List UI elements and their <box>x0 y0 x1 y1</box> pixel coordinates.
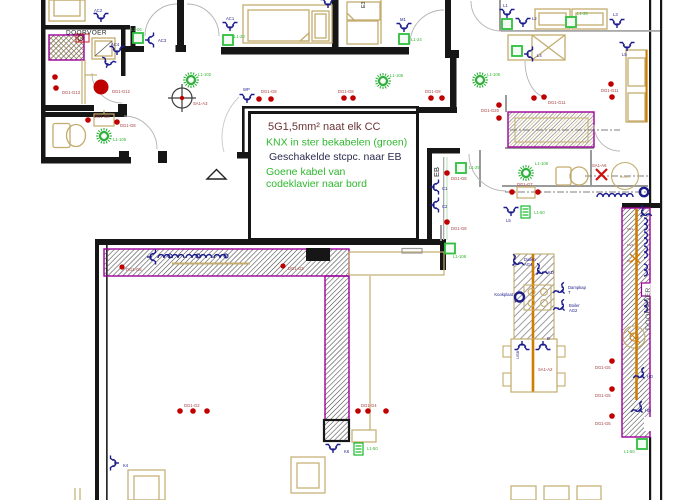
svg-text:L1-50: L1-50 <box>624 449 635 454</box>
svg-text:T: T <box>568 290 571 295</box>
svg-text:SA1-A2: SA1-A2 <box>538 367 553 372</box>
svg-text:Boiler: Boiler <box>620 174 631 179</box>
svg-text:L5: L5 <box>506 218 511 223</box>
svg-text:L1-35: L1-35 <box>577 11 588 16</box>
svg-text:B: B <box>547 336 550 341</box>
svg-text:C2: C2 <box>442 204 448 209</box>
svg-text:EB: EB <box>432 167 441 177</box>
svg-text:DG1-G8: DG1-G8 <box>338 89 354 94</box>
svg-text:Dampkap: Dampkap <box>568 285 587 290</box>
svg-text:5G1,5mm² naat elk CC: 5G1,5mm² naat elk CC <box>268 121 381 133</box>
svg-text:K6: K6 <box>344 449 350 454</box>
svg-text:MV2: MV2 <box>627 243 634 247</box>
svg-text:L1-106: L1-106 <box>535 161 549 166</box>
svg-text:L5: L5 <box>622 52 627 57</box>
svg-text:DG1-G4: DG1-G4 <box>361 403 377 408</box>
svg-text:L1-50: L1-50 <box>367 446 378 451</box>
svg-text:L1-105: L1-105 <box>390 73 404 78</box>
svg-text:Y: Y <box>514 299 517 304</box>
svg-text:L3: L3 <box>613 12 618 17</box>
svg-text:L1-106: L1-106 <box>487 72 501 77</box>
svg-text:DG1-G11: DG1-G11 <box>601 88 619 93</box>
svg-text:AC2: AC2 <box>94 8 103 13</box>
svg-text:Geschakelde stcpc. naar EB: Geschakelde stcpc. naar EB <box>269 151 402 163</box>
svg-text:SA1-A3: SA1-A3 <box>193 101 208 106</box>
svg-text:codeklavier naar bord: codeklavier naar bord <box>266 178 367 190</box>
svg-text:L1-24: L1-24 <box>411 37 422 42</box>
svg-text:DOORVOER: DOORVOER <box>645 287 652 330</box>
svg-text:L1-108: L1-108 <box>453 254 467 259</box>
svg-text:DG1-G8: DG1-G8 <box>261 89 277 94</box>
svg-text:DG1-G5: DG1-G5 <box>595 421 611 426</box>
svg-text:DG1-G13: DG1-G13 <box>62 90 81 95</box>
svg-text:L1-50: L1-50 <box>534 210 545 215</box>
svg-text:SA1-A6: SA1-A6 <box>592 163 607 168</box>
svg-text:WP: WP <box>243 87 250 92</box>
svg-text:HD: HD <box>647 374 653 379</box>
svg-text:Goene kabel van: Goene kabel van <box>266 166 346 178</box>
svg-text:L1-102: L1-102 <box>198 72 212 77</box>
svg-text:Kookplaat: Kookplaat <box>494 292 513 297</box>
svg-text:HD: HD <box>645 408 651 413</box>
svg-text:DG1-G8: DG1-G8 <box>120 123 136 128</box>
svg-text:AC1: AC1 <box>226 16 235 21</box>
svg-text:DG1-G7: DG1-G7 <box>517 182 533 187</box>
svg-text:L1-20: L1-20 <box>234 34 245 39</box>
svg-text:L1: L1 <box>503 3 508 8</box>
svg-text:DG1-G5: DG1-G5 <box>595 365 611 370</box>
svg-text:MV1: MV1 <box>627 227 634 231</box>
svg-text:E3: E3 <box>361 2 367 8</box>
svg-text:K4: K4 <box>123 463 129 468</box>
svg-text:AC4: AC4 <box>111 42 120 47</box>
svg-text:AG2: AG2 <box>569 308 578 313</box>
svg-text:M1: M1 <box>400 17 406 22</box>
svg-text:L1-29: L1-29 <box>469 165 480 170</box>
svg-text:DG1-G2: DG1-G2 <box>184 403 200 408</box>
svg-text:DG1-G12: DG1-G12 <box>112 89 131 94</box>
svg-text:DG1-G3: DG1-G3 <box>288 266 304 271</box>
svg-text:KNX in ster bekabelen (groen): KNX in ster bekabelen (groen) <box>266 137 407 149</box>
svg-text:C1: C1 <box>442 186 448 191</box>
svg-text:DG1-G8: DG1-G8 <box>425 89 441 94</box>
svg-text:L1-105: L1-105 <box>113 137 127 142</box>
svg-text:AC3: AC3 <box>158 38 167 43</box>
svg-text:DOORVOER: DOORVOER <box>66 30 107 37</box>
svg-text:AG4: AG4 <box>524 262 533 267</box>
svg-text:DG1-G20: DG1-G20 <box>481 108 500 113</box>
svg-text:DG1-G8: DG1-G8 <box>94 114 110 119</box>
svg-text:DG1-G5: DG1-G5 <box>595 393 611 398</box>
svg-text:DG1-G11: DG1-G11 <box>548 100 566 105</box>
svg-text:USB: USB <box>515 350 520 359</box>
svg-text:L1-06: L1-06 <box>131 27 142 32</box>
svg-text:DG1-G8: DG1-G8 <box>451 226 467 231</box>
svg-text:L2: L2 <box>532 16 537 21</box>
svg-text:KD: KD <box>548 270 554 275</box>
svg-text:DG1-G5: DG1-G5 <box>126 267 142 272</box>
svg-text:L4: L4 <box>537 53 542 58</box>
svg-text:DG1-G8: DG1-G8 <box>451 176 467 181</box>
